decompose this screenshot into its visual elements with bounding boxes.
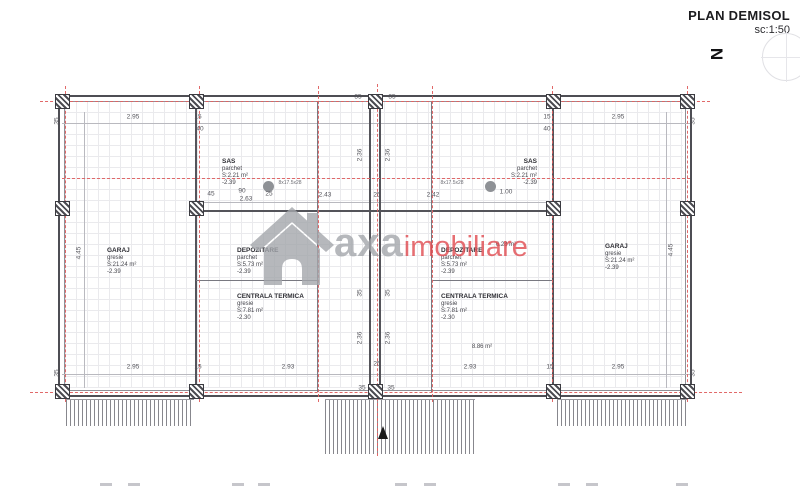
axis-line-horizontal: [62, 178, 690, 179]
pavement-hatch: [325, 399, 475, 454]
floor-plan-page: { "header": { "title": "PLAN DEMISOL", "…: [0, 0, 800, 488]
column-pier: [55, 201, 70, 216]
dimension-label: 4.45: [76, 247, 83, 260]
watermark-suffix: imobiliare: [404, 231, 528, 264]
room-level: -2.39: [511, 180, 537, 187]
dimension-label: 2.63: [240, 196, 253, 203]
dimension-label: 45: [207, 191, 214, 198]
dimension-label: 35: [388, 94, 395, 101]
cut-mark: [558, 483, 570, 486]
dimension-label: 2.93: [464, 364, 477, 371]
column-pier: [189, 201, 204, 216]
column-pier: [55, 94, 70, 109]
room-area: S:2.21 m²: [511, 173, 537, 180]
dimension-label: 25: [265, 191, 272, 198]
dimension-label: 40: [543, 126, 550, 133]
column-pier: [680, 201, 695, 216]
axis-line-vertical: [65, 86, 66, 402]
area-annotation: 8x17.5x28: [440, 180, 463, 186]
room-level: -2.30: [237, 315, 304, 322]
room-name: SAS: [222, 158, 248, 165]
room-finish: gresie: [605, 251, 634, 258]
cut-mark: [676, 483, 688, 486]
room-finish: gresie: [237, 301, 304, 308]
room-area: S:7.81 m²: [237, 308, 304, 315]
room-area: S:2.21 m²: [222, 173, 248, 180]
dimension-label: 2.42: [427, 192, 440, 199]
column-pier: [55, 384, 70, 399]
dimension-line: [62, 123, 690, 124]
room-label: CENTRALA TERMICAgresieS:7.81 m²-2.30: [441, 293, 508, 322]
room-finish: gresie: [107, 255, 136, 262]
room-name: SAS: [511, 158, 537, 165]
dimension-label: 35: [54, 117, 61, 124]
axis-line-horizontal: [30, 392, 742, 393]
dimension-label: 35: [387, 385, 394, 392]
dimension-label: 2.95: [612, 114, 625, 121]
dimension-label: 35: [358, 385, 365, 392]
dimension-label: 2.36: [357, 332, 364, 345]
room-finish: parchet: [511, 166, 537, 173]
wall-segment: [195, 102, 197, 392]
room-label: GARAJgresieS:21.24 m²-2.39: [107, 247, 136, 276]
dimension-label: 35: [690, 369, 697, 376]
column-pier: [680, 94, 695, 109]
dimension-label: 35: [54, 369, 61, 376]
dimension-label: 40: [196, 126, 203, 133]
dimension-label: 2.43: [319, 192, 332, 199]
column-pier: [368, 94, 383, 109]
dimension-label: 15: [546, 364, 553, 371]
cut-mark: [100, 483, 112, 486]
room-name: GARAJ: [605, 243, 634, 250]
axis-line-vertical: [199, 86, 200, 402]
dimension-label: 2.36: [385, 332, 392, 345]
axis-line-vertical: [552, 86, 553, 402]
room-area: S:21.24 m²: [605, 258, 634, 265]
dimension-label: 2.36: [357, 149, 364, 162]
watermark-house-icon: [250, 205, 334, 287]
cut-mark: [128, 483, 140, 486]
room-level: -2.39: [222, 180, 248, 187]
room-finish: parchet: [222, 166, 248, 173]
dimension-label: 2.93: [282, 364, 295, 371]
room-finish: gresie: [441, 301, 508, 308]
watermark: axaimobiliare: [250, 203, 550, 295]
cut-mark: [395, 483, 407, 486]
room-name: GARAJ: [107, 247, 136, 254]
area-annotation: 8.86 m²: [472, 344, 492, 350]
dimension-label: 2.36: [385, 149, 392, 162]
dimension-label: 15: [194, 114, 201, 121]
dimension-label: 4.45: [668, 244, 675, 257]
cut-mark: [586, 483, 598, 486]
column-pier: [189, 94, 204, 109]
dimension-label: 2.95: [612, 364, 625, 371]
column-pier: [680, 384, 695, 399]
dimension-label: 35: [354, 94, 361, 101]
watermark-text: axaimobiliare: [334, 221, 528, 266]
cut-mark: [258, 483, 270, 486]
dimension-label: 2.95: [127, 364, 140, 371]
axis-line-vertical: [687, 86, 688, 402]
dimension-label: 15: [543, 114, 550, 121]
room-label: GARAJgresieS:21.24 m²-2.39: [605, 243, 634, 272]
dimension-line: [84, 112, 85, 388]
area-annotation: 8x17.5x28: [278, 180, 301, 186]
dimension-line: [62, 374, 690, 375]
room-label: SASparchetS:2.21 m²-2.39: [511, 158, 537, 187]
pavement-hatch: [66, 399, 194, 426]
column-pier: [546, 384, 561, 399]
room-level: -2.39: [605, 265, 634, 272]
column-pier: [368, 384, 383, 399]
dimension-label: 2.95: [127, 114, 140, 121]
room-label: CENTRALA TERMICAgresieS:7.81 m²-2.30: [237, 293, 304, 322]
pavement-hatch: [557, 399, 688, 426]
watermark-brand: axa: [334, 221, 404, 266]
room-level: -2.39: [107, 269, 136, 276]
cut-mark: [232, 483, 244, 486]
column-pier: [189, 384, 204, 399]
dimension-label: 25: [373, 192, 380, 199]
dimension-label: 1.00: [500, 189, 513, 196]
dimension-label: 90: [238, 188, 245, 195]
room-label: SASparchetS:2.21 m²-2.39: [222, 158, 248, 187]
column-circle: [485, 181, 496, 192]
room-area: S:21.24 m²: [107, 262, 136, 269]
column-pier: [546, 94, 561, 109]
dimension-label: 15: [194, 364, 201, 371]
entrance-arrow: [378, 426, 388, 439]
dimension-label: 35: [690, 117, 697, 124]
cut-mark: [424, 483, 436, 486]
room-level: -2.30: [441, 315, 508, 322]
room-area: S:7.81 m²: [441, 308, 508, 315]
dimension-label: 25: [373, 361, 380, 368]
